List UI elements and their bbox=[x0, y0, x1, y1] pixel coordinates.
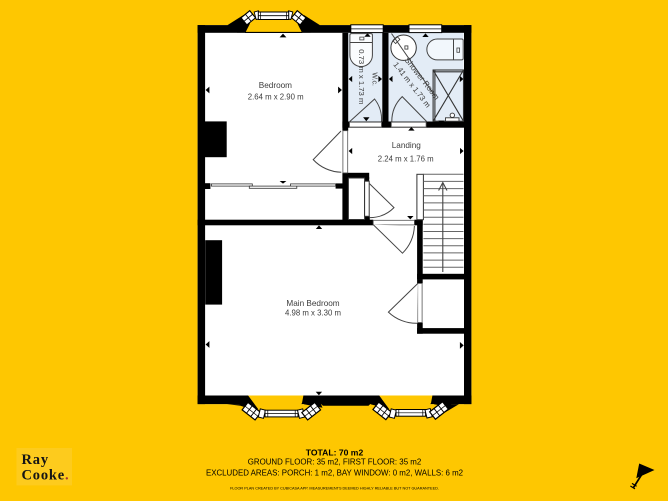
svg-text:FLOOR PLAN CREATED BY CUBICASA: FLOOR PLAN CREATED BY CUBICASA APP. MEAS… bbox=[230, 486, 439, 490]
svg-text:Landing: Landing bbox=[392, 141, 422, 150]
svg-text:EXCLUDED AREAS: PORCH: 1 m2, B: EXCLUDED AREAS: PORCH: 1 m2, BAY WINDOW:… bbox=[206, 468, 463, 477]
svg-text:Main Bedroom: Main Bedroom bbox=[286, 299, 339, 308]
svg-text:2.24 m x 1.76 m: 2.24 m x 1.76 m bbox=[378, 154, 434, 163]
svg-text:W.c.: W.c. bbox=[371, 72, 378, 86]
svg-text:4.98 m x 3.30 m: 4.98 m x 3.30 m bbox=[285, 308, 341, 317]
svg-text:Bedroom: Bedroom bbox=[259, 81, 292, 90]
svg-text:2.64 m x 2.90 m: 2.64 m x 2.90 m bbox=[248, 92, 304, 101]
svg-text:Cooke.: Cooke. bbox=[22, 468, 70, 484]
svg-text:0.73 m x 1.73 m: 0.73 m x 1.73 m bbox=[357, 49, 366, 104]
svg-text:TOTAL: 70 m2: TOTAL: 70 m2 bbox=[306, 448, 364, 458]
svg-text:GROUND FLOOR: 35 m2, FIRST FLO: GROUND FLOOR: 35 m2, FIRST FLOOR: 35 m2 bbox=[248, 458, 421, 467]
svg-text:Ray: Ray bbox=[22, 452, 49, 468]
